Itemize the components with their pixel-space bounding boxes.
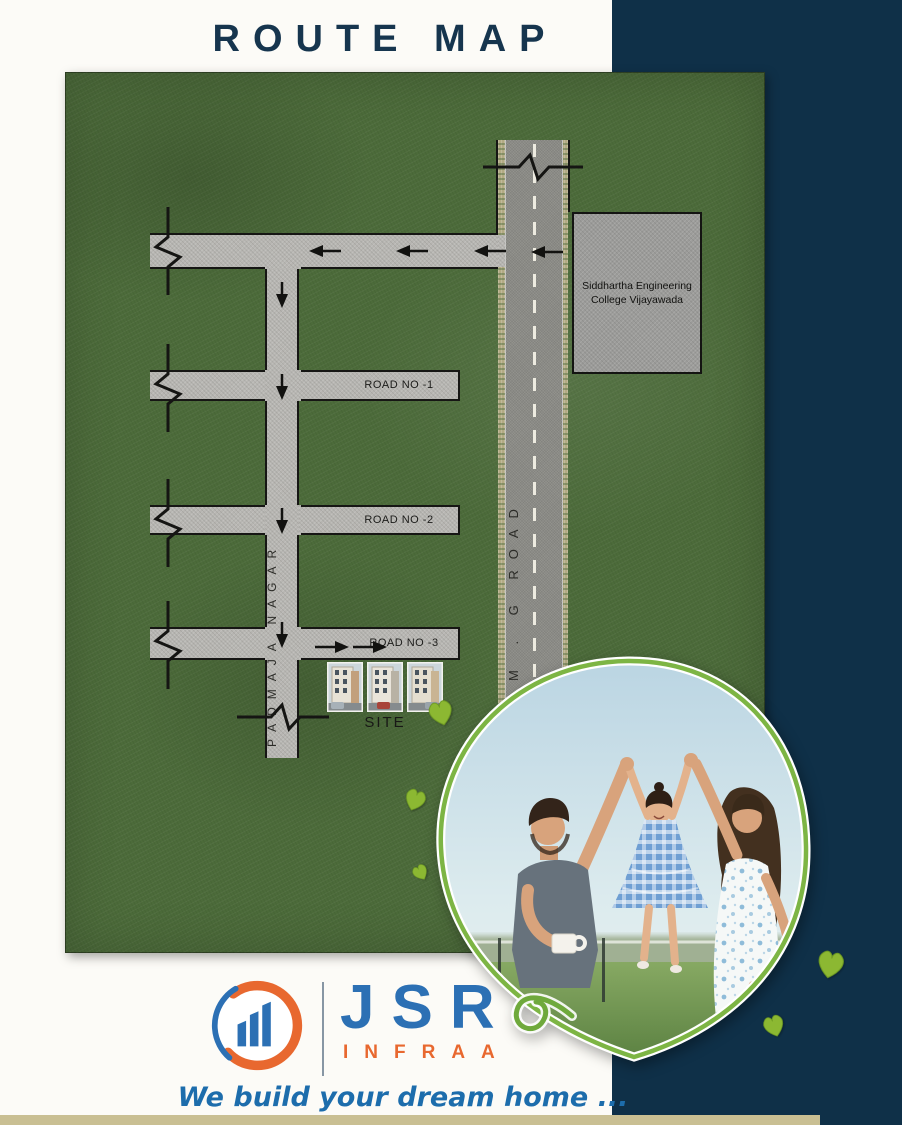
college-label-line1: Siddhartha Engineering xyxy=(574,279,700,293)
college-label-line2: College Vijayawada xyxy=(574,293,700,307)
company-tagline: We build your dream home ... xyxy=(130,1082,676,1113)
site-photo xyxy=(327,662,363,712)
route-arrow-right-icon xyxy=(315,641,349,653)
route-arrow-down-icon xyxy=(276,622,288,648)
boundary-line xyxy=(301,627,460,629)
route-arrow-left-icon xyxy=(474,245,506,257)
road-no-1-label: ROAD NO -1 xyxy=(344,370,454,401)
route-arrow-left-icon xyxy=(309,245,341,257)
boundary-line xyxy=(301,533,460,535)
boundary-line xyxy=(301,267,498,269)
page-title: ROUTE MAP xyxy=(0,18,770,61)
boundary-line xyxy=(301,370,460,372)
boundary-line xyxy=(297,269,299,370)
route-arrow-left-icon xyxy=(531,246,563,258)
company-subname: INFRAA xyxy=(343,1042,511,1064)
logo-divider xyxy=(322,982,324,1076)
boundary-line xyxy=(301,399,460,401)
route-arrow-down-icon xyxy=(276,374,288,400)
road-no-2: ROAD NO -2 xyxy=(150,505,460,535)
road-break-icon xyxy=(237,702,329,732)
boundary-line xyxy=(150,233,498,235)
road-no-2-label: ROAD NO -2 xyxy=(344,505,454,535)
boundary-line xyxy=(297,535,299,627)
boundary-line xyxy=(301,505,460,507)
route-arrow-down-icon xyxy=(276,508,288,534)
road-break-icon xyxy=(153,601,183,689)
route-arrow-left-icon xyxy=(396,245,428,257)
site-photo xyxy=(367,662,403,712)
road-break-icon xyxy=(153,479,183,567)
route-arrow-down-icon xyxy=(276,282,288,308)
leaf-icon xyxy=(811,945,850,984)
boundary-line xyxy=(265,535,267,627)
boundary-line xyxy=(458,370,460,401)
route-arrow-right-icon xyxy=(353,641,387,653)
boundary-line xyxy=(458,505,460,535)
route-map-poster: ROUTE MAP M . G ROAD Siddhartha Engineer… xyxy=(0,0,902,1125)
road-break-icon xyxy=(153,344,183,432)
bottom-accent-corner xyxy=(820,1112,902,1125)
college-block: Siddhartha Engineering College Vijayawad… xyxy=(572,212,702,374)
boundary-line xyxy=(297,401,299,505)
boundary-line xyxy=(265,269,267,370)
boundary-line xyxy=(265,401,267,505)
bottom-accent-strip xyxy=(0,1115,820,1125)
road-break-icon xyxy=(153,207,183,295)
road-no-1: ROAD NO -1 xyxy=(150,370,460,401)
road-no-3: ROAD NO -3 xyxy=(150,627,460,660)
logo-emblem xyxy=(210,978,305,1073)
road-break-icon xyxy=(483,152,583,182)
company-name: JSR xyxy=(340,972,512,1043)
